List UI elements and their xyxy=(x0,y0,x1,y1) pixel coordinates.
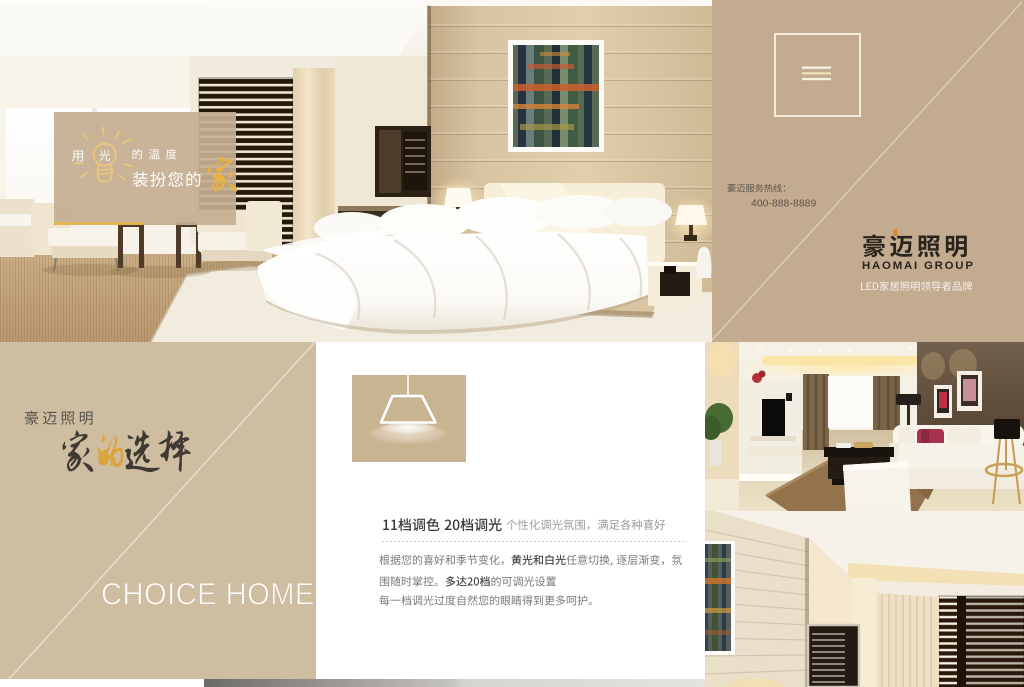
svg-text:CHOICE HOME: CHOICE HOME xyxy=(101,578,315,612)
svg-text:HAOMAI GROUP: HAOMAI GROUP xyxy=(862,260,975,272)
svg-text:400-888-8889: 400-888-8889 xyxy=(751,199,816,210)
